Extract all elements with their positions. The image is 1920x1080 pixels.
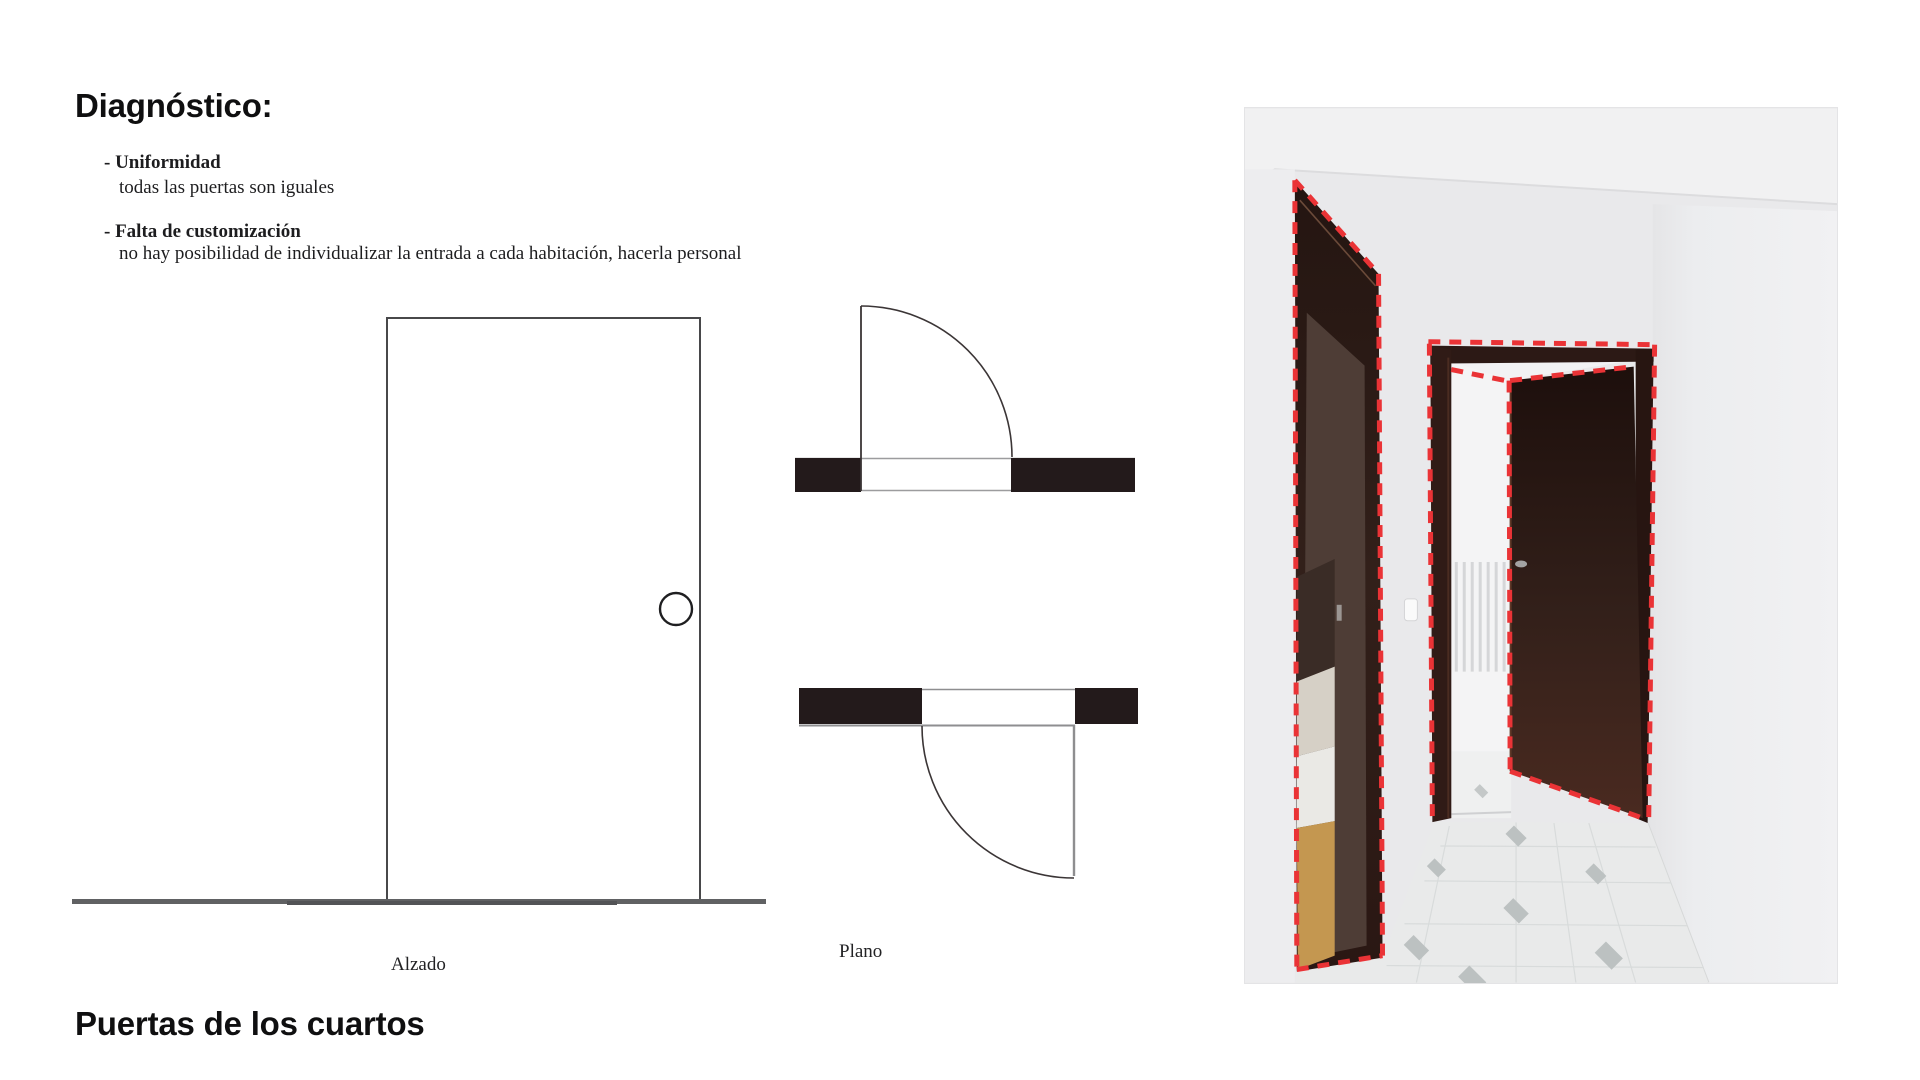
door-elevation-drawing	[72, 318, 766, 905]
photo-open-door	[1510, 367, 1643, 818]
elevation-door-outline	[387, 318, 700, 903]
hallway-photo-svg	[1245, 108, 1837, 983]
hallway-photo	[1244, 107, 1838, 984]
door-plan-symbol-bottom	[799, 688, 1138, 878]
door-lock	[1337, 605, 1342, 621]
plan-wall-left	[799, 688, 922, 724]
elevation-ground-line-segment	[287, 901, 617, 905]
plan-wall-right	[1011, 458, 1135, 492]
door-handle	[1515, 560, 1527, 567]
light-switch	[1404, 599, 1417, 621]
elevation-door-knob	[660, 593, 692, 625]
photo-left-door	[1295, 180, 1383, 971]
door-plan-symbol-top	[795, 306, 1135, 492]
plan-wall-right	[1075, 688, 1138, 724]
plan-door-swing-arc	[922, 726, 1074, 878]
plan-wall-left	[795, 458, 861, 492]
plan-door-swing-arc	[861, 306, 1012, 457]
